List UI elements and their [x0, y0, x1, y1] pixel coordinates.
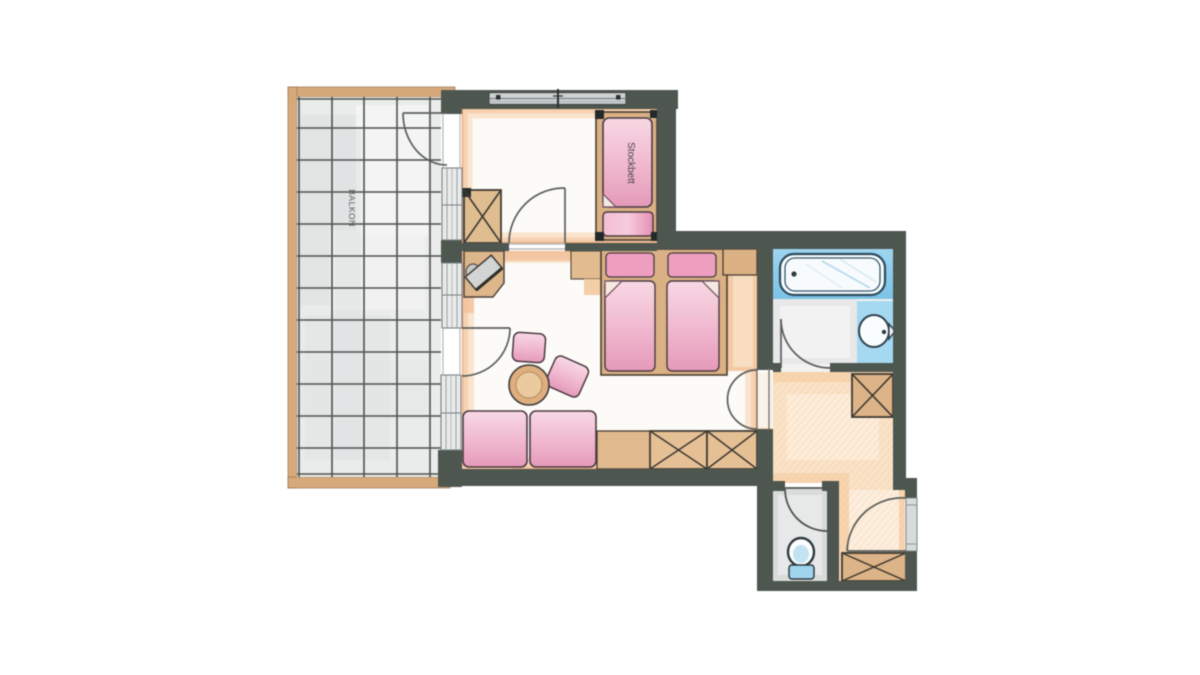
svg-text:BALKON: BALKON: [347, 189, 357, 227]
svg-text:Stockbett: Stockbett: [625, 142, 636, 184]
